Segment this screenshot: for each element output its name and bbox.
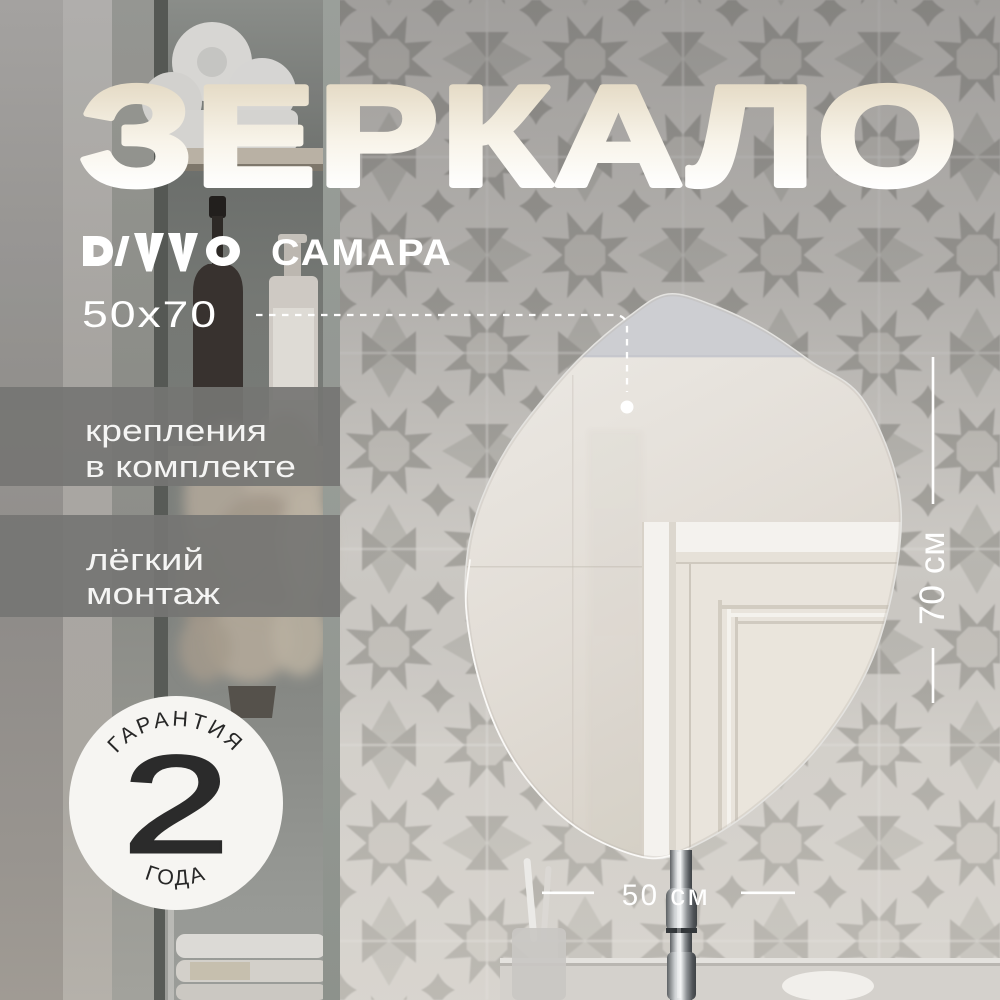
svg-text:50x70: 50x70 bbox=[82, 294, 218, 335]
svg-text:70 см: 70 см bbox=[912, 531, 952, 625]
svg-text:САМАРА: САМАРА bbox=[271, 232, 453, 273]
svg-text:в комплекте: в комплекте bbox=[85, 449, 296, 484]
svg-text:монтаж: монтаж bbox=[86, 576, 220, 611]
svg-text:2: 2 bbox=[122, 727, 229, 882]
svg-text:50 см: 50 см bbox=[622, 879, 711, 912]
svg-text:крепления: крепления bbox=[85, 413, 267, 448]
svg-text:ЗЕРКАЛО: ЗЕРКАЛО bbox=[80, 57, 960, 216]
svg-text:лёгкий: лёгкий bbox=[86, 542, 204, 577]
